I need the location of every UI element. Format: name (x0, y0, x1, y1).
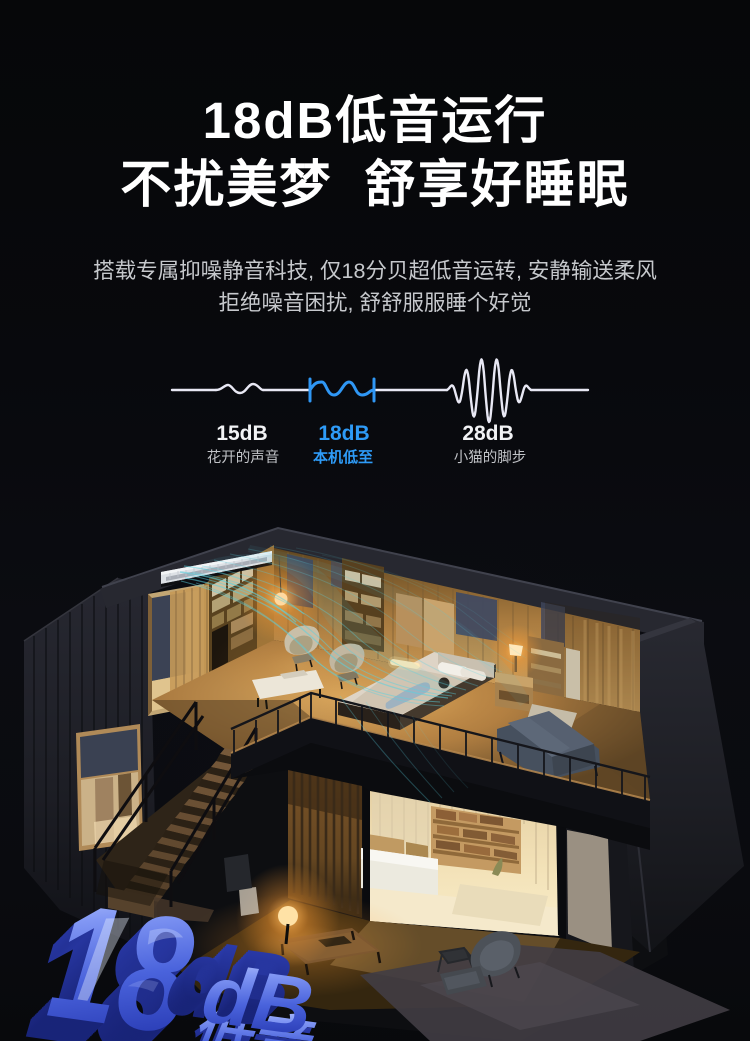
svg-text:dB: dB (197, 948, 318, 1041)
